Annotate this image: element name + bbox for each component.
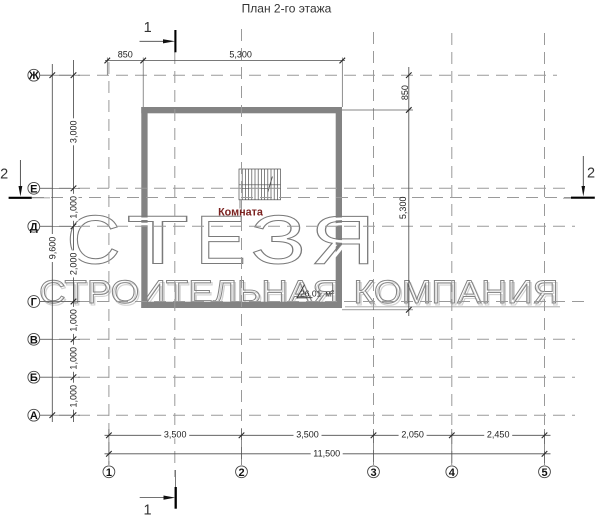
svg-text:1,000: 1,000 [69,196,79,219]
svg-text:Т: Т [127,202,190,279]
svg-text:Комната: Комната [218,206,264,218]
svg-text:1: 1 [106,467,112,479]
svg-text:2: 2 [0,167,8,183]
svg-text:Е: Е [30,183,37,195]
svg-text:2,000: 2,000 [69,253,79,276]
svg-text:3,000: 3,000 [69,121,79,144]
svg-text:2,450: 2,450 [487,430,510,440]
svg-text:Б: Б [30,372,38,384]
svg-text:1,000: 1,000 [69,347,79,370]
svg-text:2,050: 2,050 [401,430,424,440]
svg-text:м²: м² [325,288,334,298]
svg-text:1,000: 1,000 [69,385,79,408]
svg-text:1,000: 1,000 [69,309,79,332]
svg-text:2: 2 [238,467,244,479]
svg-text:850: 850 [400,85,410,100]
svg-text:В: В [30,334,38,346]
svg-text:КОМПАНИЯ: КОМПАНИЯ [354,274,559,310]
svg-text:1: 1 [144,20,152,36]
svg-text:Ж: Ж [28,70,39,82]
svg-text:2: 2 [587,165,595,181]
svg-text:3,500: 3,500 [296,430,319,440]
svg-text:9,600: 9,600 [47,237,57,260]
svg-text:3,500: 3,500 [164,430,187,440]
svg-text:850: 850 [118,50,133,60]
svg-text:5,300: 5,300 [398,197,408,220]
svg-text:3: 3 [370,467,376,479]
svg-text:26.01: 26.01 [300,288,322,298]
svg-text:4: 4 [449,467,456,479]
svg-text:А: А [30,410,38,422]
svg-text:Я: Я [311,202,376,279]
svg-text:1: 1 [143,503,151,519]
svg-text:5: 5 [541,467,547,479]
svg-text:Г: Г [31,297,38,309]
svg-text:5,300: 5,300 [229,50,252,60]
svg-text:План 2-го этажа: План 2-го этажа [242,1,332,15]
svg-text:Д: Д [30,221,38,233]
svg-text:11,500: 11,500 [313,448,340,458]
